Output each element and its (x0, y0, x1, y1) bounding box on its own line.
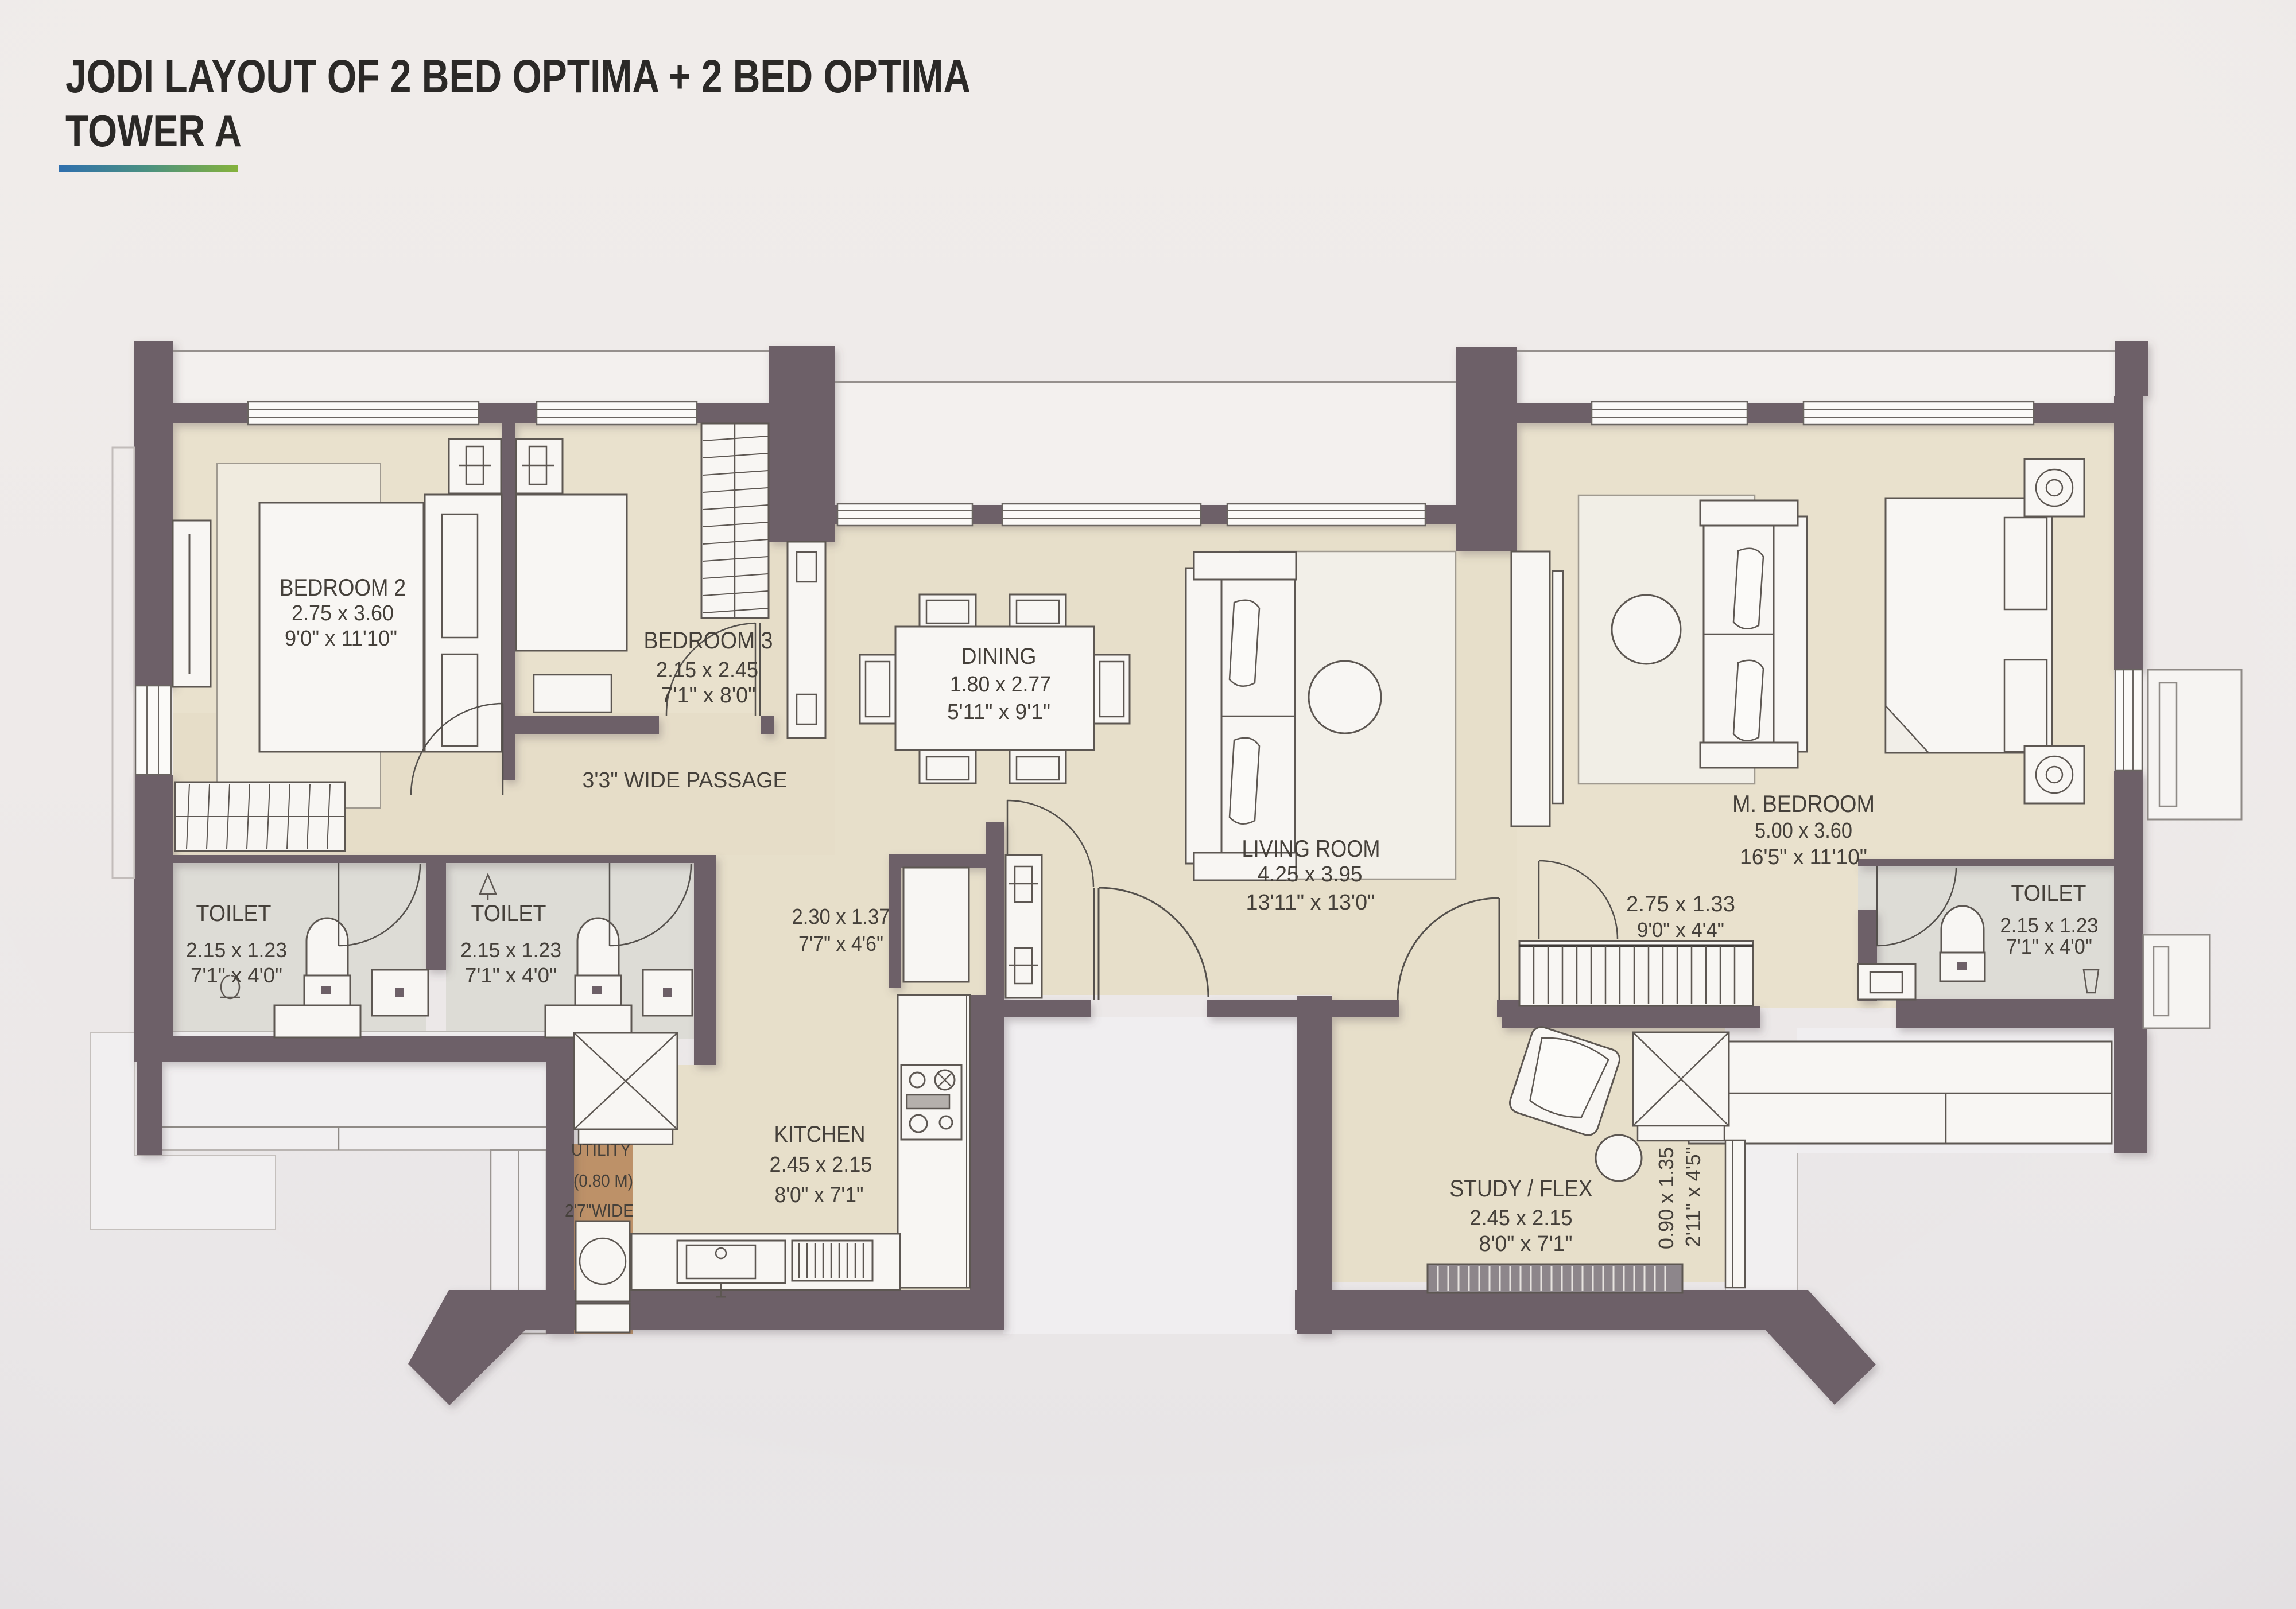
svg-text:JODI LAYOUT OF 2 BED OPTIMA +: JODI LAYOUT OF 2 BED OPTIMA + 2 BED OPTI… (65, 50, 971, 103)
svg-text:TOILET: TOILET (196, 901, 272, 926)
svg-text:2.15 x 1.23: 2.15 x 1.23 (460, 938, 561, 962)
svg-text:M. BEDROOM: M. BEDROOM (1732, 790, 1875, 817)
svg-text:5.00 x 3.60: 5.00 x 3.60 (1755, 819, 1852, 843)
svg-text:13'11" x 13'0": 13'11" x 13'0" (1246, 891, 1375, 915)
svg-text:3'3" WIDE PASSAGE: 3'3" WIDE PASSAGE (583, 768, 788, 792)
svg-text:TOWER A: TOWER A (65, 106, 242, 156)
svg-text:8'0" x 7'1": 8'0" x 7'1" (1479, 1232, 1573, 1256)
svg-text:7'7" x 4'6": 7'7" x 4'6" (798, 932, 883, 955)
svg-text:1.80 x 2.77: 1.80 x 2.77 (950, 673, 1051, 697)
svg-text:7'1" x 4'0": 7'1" x 4'0" (2006, 935, 2092, 958)
svg-text:BEDROOM 3: BEDROOM 3 (644, 627, 773, 654)
svg-text:TOILET: TOILET (2011, 881, 2086, 906)
svg-text:BEDROOM 2: BEDROOM 2 (280, 574, 406, 601)
svg-text:LIVING ROOM: LIVING ROOM (1242, 835, 1380, 862)
svg-text:2.75 x 1.33: 2.75 x 1.33 (1626, 892, 1735, 916)
svg-text:KITCHEN: KITCHEN (774, 1122, 866, 1147)
svg-text:STUDY / FLEX: STUDY / FLEX (1450, 1175, 1593, 1202)
svg-text:(0.80 M): (0.80 M) (573, 1171, 633, 1191)
svg-text:2.15 x 1.23: 2.15 x 1.23 (2000, 914, 2099, 937)
svg-text:5'11" x 9'1": 5'11" x 9'1" (947, 700, 1050, 724)
svg-text:2'7"WIDE: 2'7"WIDE (565, 1200, 634, 1221)
svg-text:0.90 x 1.35: 0.90 x 1.35 (1654, 1147, 1678, 1249)
svg-text:DINING: DINING (961, 644, 1037, 669)
svg-text:16'5" x 11'10": 16'5" x 11'10" (1740, 845, 1867, 869)
svg-text:UTILITY: UTILITY (571, 1140, 631, 1160)
svg-text:9'0" x 4'4": 9'0" x 4'4" (1637, 918, 1724, 942)
svg-text:2.30 x 1.37: 2.30 x 1.37 (792, 905, 890, 929)
svg-text:7'1" x 8'0": 7'1" x 8'0" (661, 683, 756, 708)
svg-text:9'0" x 11'10": 9'0" x 11'10" (285, 627, 397, 651)
svg-text:8'0" x 7'1": 8'0" x 7'1" (775, 1183, 864, 1207)
svg-text:2'11" x 4'5": 2'11" x 4'5" (1681, 1147, 1705, 1247)
svg-text:2.75 x 3.60: 2.75 x 3.60 (292, 601, 394, 625)
svg-text:2.15 x 2.45: 2.15 x 2.45 (656, 658, 758, 682)
svg-text:2.15 x 1.23: 2.15 x 1.23 (186, 938, 287, 962)
svg-text:7'1" x 4'0": 7'1" x 4'0" (465, 963, 557, 987)
svg-text:4.25 x 3.95: 4.25 x 3.95 (1258, 862, 1363, 887)
svg-text:2.45 x 2.15: 2.45 x 2.15 (1470, 1206, 1573, 1230)
svg-text:2.45 x 2.15: 2.45 x 2.15 (770, 1153, 872, 1177)
svg-text:7'1" x 4'0": 7'1" x 4'0" (191, 963, 282, 987)
svg-text:TOILET: TOILET (471, 901, 546, 926)
